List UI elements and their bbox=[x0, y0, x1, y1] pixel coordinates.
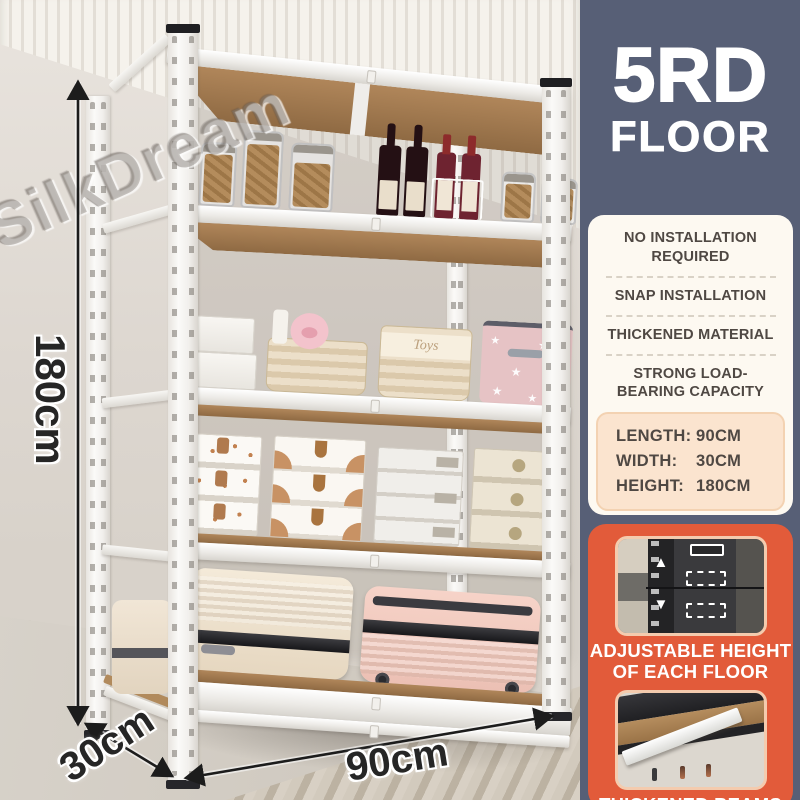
shelf-tier-suitcases bbox=[170, 556, 580, 748]
box-label bbox=[436, 457, 458, 468]
toys-basket: Toys bbox=[377, 325, 473, 402]
leather-clasp bbox=[213, 503, 226, 520]
telescopic-handle bbox=[373, 596, 533, 616]
caption-line: OF EACH FLOOR bbox=[588, 662, 793, 683]
leather-clasp bbox=[217, 437, 230, 454]
detail-caption: THICKENED BEAMS bbox=[588, 795, 793, 800]
beige-suitcase bbox=[186, 567, 355, 680]
floor-count: 5RD bbox=[588, 40, 793, 112]
divider bbox=[606, 354, 776, 356]
down-arrow-icon: ▼ bbox=[654, 597, 669, 612]
spec-value: 90CM bbox=[696, 424, 741, 449]
detail-photo-adjustable: ▲ ▼ bbox=[615, 536, 767, 636]
floor-count-badge: 5RD FLOOR bbox=[588, 40, 793, 159]
feature-item: STRONG LOAD-BEARING CAPACITY bbox=[594, 363, 787, 405]
wine-bottle bbox=[376, 145, 402, 216]
bolt bbox=[706, 764, 711, 777]
toys-basket-label: Toys bbox=[413, 338, 439, 355]
box-corner bbox=[342, 522, 361, 541]
shelf-tier-baskets: Toys ★ ★ ★ ★ ★ ★ bbox=[170, 296, 576, 435]
feature-item: SNAP INSTALLATION bbox=[594, 285, 787, 308]
specs-box: LENGTH: 90CM WIDTH: 30CM HEIGHT: 180CM bbox=[596, 412, 785, 511]
box-corner bbox=[274, 450, 293, 469]
side-beam bbox=[102, 544, 173, 561]
side-beam bbox=[102, 390, 173, 408]
food-jar bbox=[288, 142, 335, 212]
metal-clasp bbox=[512, 459, 526, 473]
shelf-front-right-post bbox=[542, 84, 570, 714]
caption-line: ADJUSTABLE HEIGHT bbox=[588, 641, 793, 662]
toys-label-band: Toys bbox=[380, 332, 471, 361]
post-foot bbox=[540, 712, 572, 721]
feature-item: NO INSTALLATION REQUIRED bbox=[594, 227, 787, 269]
spec-label: WIDTH: bbox=[616, 449, 696, 474]
box-corner bbox=[344, 488, 363, 507]
spec-label: LENGTH: bbox=[616, 424, 696, 449]
box-label bbox=[432, 527, 454, 538]
spec-row: HEIGHT: 180CM bbox=[616, 474, 777, 499]
spec-value: 180CM bbox=[696, 474, 751, 499]
post-seam bbox=[646, 587, 764, 589]
spec-label: HEIGHT: bbox=[616, 474, 696, 499]
shelf-tier-boxes bbox=[170, 432, 576, 579]
metal-clasp bbox=[508, 527, 522, 541]
height-dimension-label: 180cm bbox=[26, 334, 74, 465]
lotion-bottle bbox=[272, 309, 289, 344]
background-wall bbox=[618, 601, 648, 633]
suitcase-band bbox=[112, 648, 172, 658]
up-arrow-icon: ▲ bbox=[654, 555, 669, 570]
background-wall bbox=[618, 539, 648, 573]
pink-suitcase bbox=[359, 585, 541, 693]
divider bbox=[606, 315, 776, 317]
spec-value: 30CM bbox=[696, 449, 741, 474]
feature-item: THICKENED MATERIAL bbox=[594, 324, 787, 347]
bottle-rack bbox=[430, 178, 484, 221]
metal-clasp bbox=[510, 493, 524, 507]
detail-photo-beams bbox=[615, 690, 767, 790]
slot-highlight bbox=[690, 544, 724, 556]
box-corner bbox=[270, 518, 289, 537]
post-cap bbox=[166, 24, 200, 33]
leather-clasp bbox=[313, 474, 326, 492]
bolt bbox=[680, 766, 685, 779]
bolt bbox=[652, 768, 657, 781]
suitcase-handle bbox=[201, 644, 236, 655]
leather-clasp bbox=[215, 470, 228, 487]
box-corner bbox=[272, 484, 291, 503]
detail-cards-panel: ▲ ▼ ADJUSTABLE HEIGHT OF EACH FLOOR THIC… bbox=[588, 524, 793, 800]
floor-word: FLOOR bbox=[588, 116, 793, 159]
product-photo: Toys ★ ★ ★ ★ ★ ★ bbox=[0, 0, 580, 800]
leather-clasp bbox=[311, 508, 324, 526]
side-suitcase bbox=[112, 600, 172, 694]
box-corner bbox=[346, 454, 365, 473]
spec-row: WIDTH: 30CM bbox=[616, 449, 777, 474]
caption-line: THICKENED BEAMS bbox=[588, 795, 793, 800]
features-card: NO INSTALLATION REQUIRED SNAP INSTALLATI… bbox=[588, 215, 793, 515]
slot-highlight-dashed bbox=[686, 571, 726, 586]
spec-row: LENGTH: 90CM bbox=[616, 424, 777, 449]
flat-box-stack bbox=[373, 447, 464, 547]
divider bbox=[606, 276, 776, 278]
wine-bottle bbox=[403, 146, 429, 217]
product-promo-image: Toys ★ ★ ★ ★ ★ ★ bbox=[0, 0, 800, 800]
slot-highlight-dashed bbox=[686, 603, 726, 618]
suitcase-box-stack bbox=[269, 435, 366, 542]
info-sidebar: 5RD FLOOR NO INSTALLATION REQUIRED SNAP … bbox=[580, 0, 800, 800]
post-texture bbox=[736, 539, 764, 633]
box-label bbox=[434, 493, 456, 504]
post-cap bbox=[540, 78, 572, 87]
pig-snout bbox=[301, 327, 318, 339]
detail-caption: ADJUSTABLE HEIGHT OF EACH FLOOR bbox=[588, 641, 793, 682]
post-foot bbox=[166, 780, 200, 789]
nut-jar bbox=[500, 171, 537, 223]
leather-clasp bbox=[314, 440, 327, 458]
